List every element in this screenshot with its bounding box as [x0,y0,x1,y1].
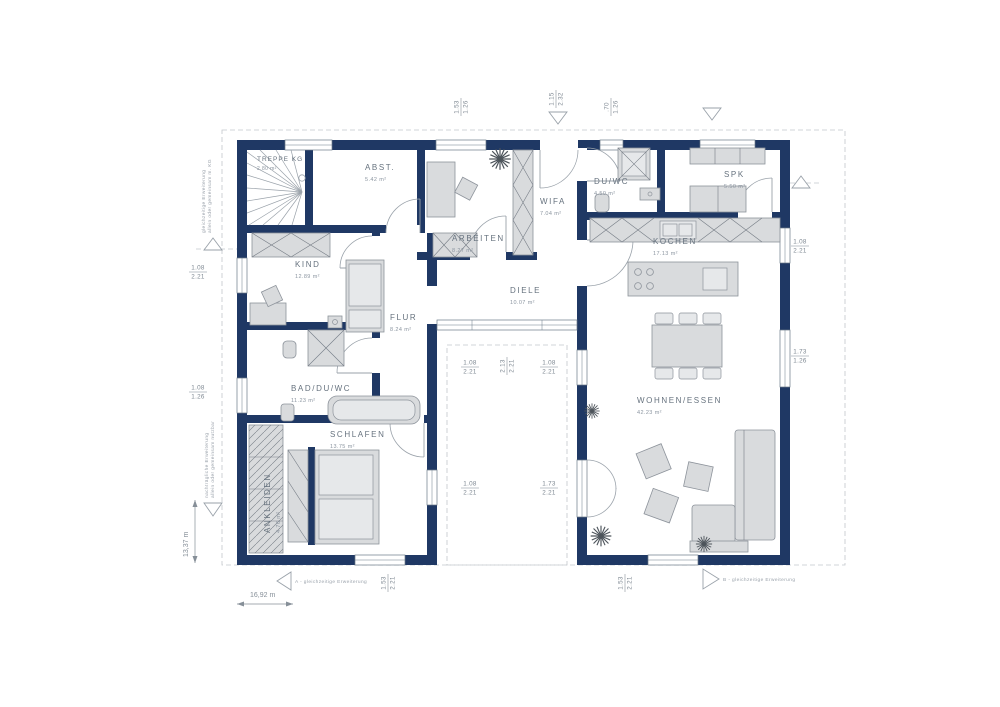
room-label-spk: SPK5.50 m² [724,170,745,190]
svg-text:4.50 m²: 4.50 m² [594,191,615,197]
svg-text:WOHNEN/ESSEN: WOHNEN/ESSEN [637,396,722,405]
dim-bottom-1: 1.532.21 [381,574,397,592]
svg-text:2.21: 2.21 [542,490,556,497]
room-label-abst: ABST.5.42 m² [365,163,395,183]
svg-text:allein oder gemeinsam m. KG: allein oder gemeinsam m. KG [207,159,213,233]
dim-court-1: 1.082.21 [461,360,479,376]
svg-text:2.21: 2.21 [509,359,516,373]
svg-text:2.21: 2.21 [390,576,397,590]
room-label-duwc: DU/WC4.50 m² [594,177,629,197]
svg-text:1.73: 1.73 [542,481,556,488]
svg-text:1.53: 1.53 [381,576,388,590]
svg-text:DIELE: DIELE [510,286,541,295]
floor-plan-canvas: TREPPE KG2.80 m² ABST.5.42 m² ARBEITEN8.… [0,0,1000,707]
floor-plan-drawing: TREPPE KG2.80 m² ABST.5.42 m² ARBEITEN8.… [0,0,1000,707]
room-label-flur: FLUR8.24 m² [390,313,417,333]
window [285,140,332,150]
extension-a-marker [277,572,291,590]
svg-text:2.13: 2.13 [500,359,507,373]
svg-text:13.75 m²: 13.75 m² [330,444,355,450]
scale-height-label: 13,37 m [183,532,190,557]
svg-text:FLUR: FLUR [390,313,417,322]
svg-text:2.80 m²: 2.80 m² [257,166,277,172]
window [648,555,698,565]
svg-text:SPK: SPK [724,170,745,179]
svg-text:1.26: 1.26 [191,394,205,401]
svg-text:1.26: 1.26 [793,358,807,365]
svg-text:4.76 m²: 4.76 m² [276,512,282,533]
svg-text:1.53: 1.53 [454,100,461,114]
bad-fixtures [281,330,420,424]
dim-court-2: 2.132.21 [500,357,516,375]
right-marker [792,176,810,188]
svg-text:12.89 m²: 12.89 m² [295,274,320,280]
room-label-wifa: WIFA7.04 m² [540,197,566,217]
spk-shelving [690,148,765,212]
annotation-left-bottom: nachträgliche Erweiterung allein oder ge… [204,421,216,498]
window [237,378,247,413]
kind-furniture [250,233,384,332]
svg-text:8.24 m²: 8.24 m² [390,327,411,333]
svg-text:2.21: 2.21 [463,369,477,376]
dim-top-2: 1.152.32 [549,90,565,108]
svg-text:7.04 m²: 7.04 m² [540,211,561,217]
room-label-kind: KIND12.89 m² [295,260,321,280]
bed-headboard-wall [308,447,315,545]
dim-top-1: 1.531.26 [454,98,470,116]
top-marker [703,108,721,120]
left-bottom-marker [204,503,222,516]
svg-text:WIFA: WIFA [540,197,566,206]
wifa-closet [513,150,533,255]
extension-b-marker [703,569,719,589]
svg-text:ANKLEIDEN: ANKLEIDEN [263,473,272,533]
svg-text:1.08: 1.08 [463,360,477,367]
schlafen-furniture [288,450,379,544]
svg-text:BAD/DU/WC: BAD/DU/WC [291,384,351,393]
svg-text:ABST.: ABST. [365,163,395,172]
living-room-furniture [636,430,775,552]
svg-text:1.08: 1.08 [463,481,477,488]
svg-text:DU/WC: DU/WC [594,177,629,186]
dim-court-3: 1.082.21 [540,360,558,376]
svg-text:2.21: 2.21 [191,274,205,281]
annotation-a: A - gleichzeitige Erweiterung [295,579,367,585]
svg-text:nachträgliche Erweiterung: nachträgliche Erweiterung [204,433,210,498]
room-label-schlafen: SCHLAFEN13.75 m² [330,430,385,450]
svg-text:KOCHEN: KOCHEN [653,237,697,246]
svg-text:1.73: 1.73 [793,349,807,356]
dim-left-1: 1.082.21 [189,265,207,281]
svg-text:TREPPE KG: TREPPE KG [257,156,303,163]
dim-bottom-2: 1.532.21 [618,574,634,592]
window [355,555,405,565]
svg-text:allein oder gemeinsam nutzbar: allein oder gemeinsam nutzbar [210,421,216,498]
entrance-marker [549,112,567,124]
svg-text:1.08: 1.08 [793,239,807,246]
svg-text:ARBEITEN: ARBEITEN [452,234,505,243]
svg-text:1.26: 1.26 [463,100,470,114]
left-top-marker [204,238,222,250]
svg-text:2.21: 2.21 [793,248,807,255]
kitchen-island [628,262,738,296]
dining-set [652,313,722,379]
svg-text:1.26: 1.26 [613,100,620,114]
room-label-diele: DIELE10.07 m² [510,286,541,306]
dim-right-2: 1.731.26 [791,349,809,365]
dim-top-3: .701.26 [604,98,620,116]
svg-text:KIND: KIND [295,260,321,269]
window [780,330,790,387]
dim-left-2: 1.081.26 [189,385,207,401]
svg-text:5.42 m²: 5.42 m² [365,177,386,183]
window [780,228,790,263]
window [436,140,486,150]
window [237,258,247,293]
furniture [249,148,780,553]
room-label-wohnen: WOHNEN/ESSEN42.23 m² [637,396,722,416]
annotation-left-top: gleichzeitige Erweiterung allein oder ge… [201,159,213,233]
svg-text:1.08: 1.08 [191,385,205,392]
svg-text:8.27 m²: 8.27 m² [452,248,473,254]
svg-text:2.21: 2.21 [463,490,477,497]
dim-court-5: 1.732.21 [540,481,558,497]
svg-text:1.08: 1.08 [191,265,205,272]
svg-text:gleichzeitige Erweiterung: gleichzeitige Erweiterung [201,170,207,233]
svg-text:42.23 m²: 42.23 m² [637,410,662,416]
svg-text:1.15: 1.15 [549,92,556,106]
dim-right-1: 1.082.21 [791,239,809,255]
svg-text:17.13 m²: 17.13 m² [653,251,678,257]
svg-text:.70: .70 [604,102,611,112]
dim-court-4: 1.082.21 [461,481,479,497]
svg-text:10.07 m²: 10.07 m² [510,300,535,306]
svg-text:SCHLAFEN: SCHLAFEN [330,430,385,439]
svg-text:2.21: 2.21 [542,369,556,376]
svg-text:2.21: 2.21 [627,576,634,590]
svg-text:11.23 m²: 11.23 m² [291,398,316,404]
terrace-door [577,460,587,517]
window [427,470,437,505]
svg-text:5.50 m²: 5.50 m² [724,184,745,190]
room-label-kochen: KOCHEN17.13 m² [653,237,697,257]
annotation-b: B - gleichzeitige Erweiterung [723,577,795,583]
scale-width-label: 16,92 m [250,592,275,599]
svg-text:2.32: 2.32 [558,92,565,106]
svg-text:1.53: 1.53 [618,576,625,590]
glass-front-courtyard [437,320,577,330]
svg-text:1.08: 1.08 [542,360,556,367]
window [577,350,587,385]
